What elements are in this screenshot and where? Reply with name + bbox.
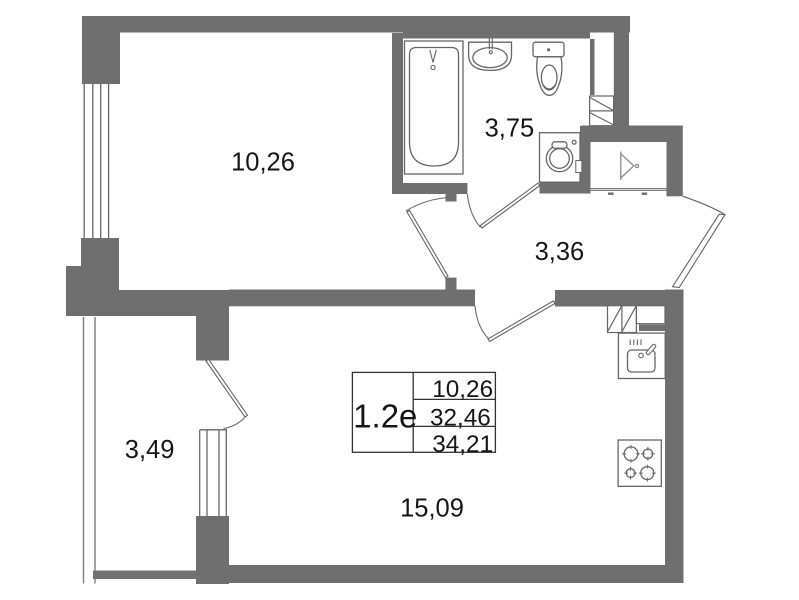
svg-text:3,36: 3,36 xyxy=(535,238,585,266)
svg-text:15,09: 15,09 xyxy=(400,495,464,523)
svg-text:34,21: 34,21 xyxy=(432,431,493,458)
svg-text:3,49: 3,49 xyxy=(125,436,175,464)
svg-text:1.2е: 1.2е xyxy=(353,398,417,435)
svg-text:3,75: 3,75 xyxy=(485,114,535,142)
svg-text:32,46: 32,46 xyxy=(430,404,491,431)
svg-text:10,26: 10,26 xyxy=(432,376,493,403)
svg-text:10,26: 10,26 xyxy=(231,149,295,177)
